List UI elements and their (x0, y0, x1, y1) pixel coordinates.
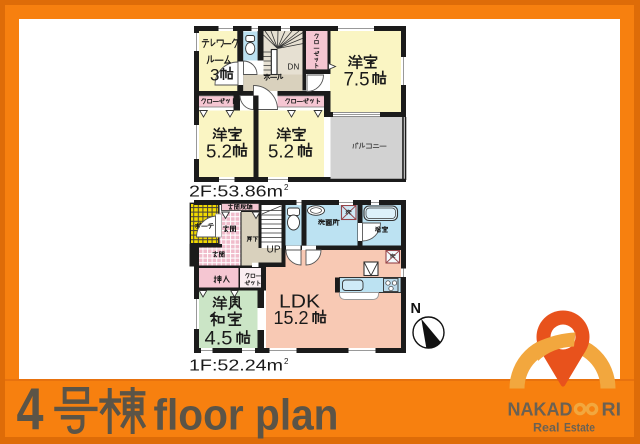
svg-text:DN: DN (288, 63, 300, 72)
svg-text:4.5: 4.5 (205, 328, 233, 350)
svg-text:NAKAD: NAKAD (508, 400, 573, 420)
svg-text:UP: UP (267, 245, 281, 256)
svg-text:1F:52.24m: 1F:52.24m (189, 358, 283, 375)
svg-text:Real: Real (533, 421, 560, 435)
svg-text:5.2: 5.2 (268, 142, 294, 162)
svg-text:floor plan: floor plan (154, 392, 339, 440)
svg-text:Estate: Estate (564, 421, 595, 435)
svg-text:15.2: 15.2 (274, 307, 309, 328)
svg-text:7.5: 7.5 (344, 70, 370, 91)
svg-text:2F:53.86m: 2F:53.86m (189, 184, 283, 201)
svg-text:2: 2 (284, 357, 289, 366)
svg-text:4: 4 (17, 377, 44, 443)
svg-text:N: N (411, 301, 421, 317)
svg-text:5.2: 5.2 (206, 142, 232, 162)
svg-text:RI: RI (602, 400, 622, 420)
svg-text:3: 3 (210, 66, 219, 85)
svg-text:2: 2 (284, 183, 289, 192)
